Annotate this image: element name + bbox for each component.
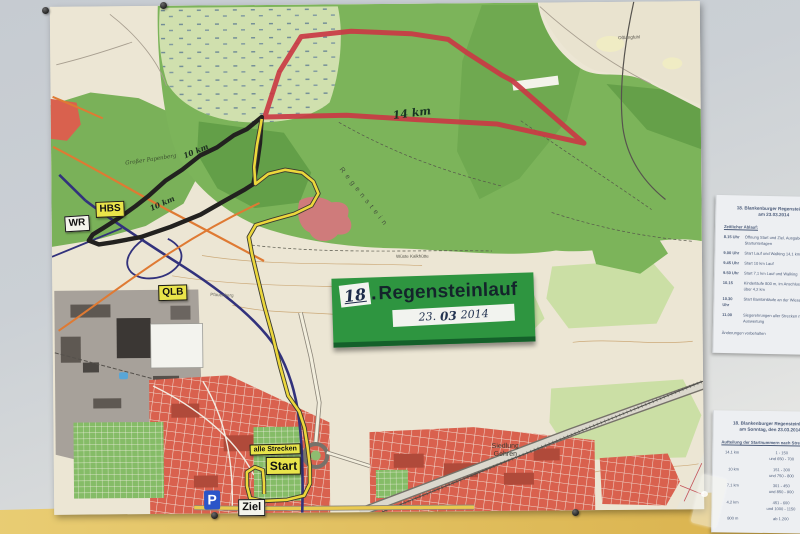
schedule-row: 10.30 UhrStart Bambiniläufe an der Wiese: [722, 296, 800, 310]
parking-sign: P: [204, 490, 220, 509]
place-kalkhuette: Wüste Kalkhütte: [396, 254, 429, 259]
event-sign-separator: .: [371, 282, 377, 305]
event-date-day: 23.: [418, 310, 436, 324]
note-startnumbers-heading: Aufteilung der Startnummern nach Strecke…: [721, 439, 800, 447]
pushpin: [42, 7, 49, 14]
note-schedule-subtitle: am 23.03.2014: [724, 211, 800, 219]
pushpin: [211, 512, 218, 519]
startnumber-row: 10 km151 - 300 und 750 - 800: [721, 466, 800, 479]
note-schedule-footer: Änderungen vorbehalten: [722, 330, 800, 338]
event-date-month: 03: [440, 308, 457, 323]
schedule-row: 9.00 UhrStart Lauf und Walking 14,1 km: [723, 250, 800, 258]
topographic-course-map: Großer Papenberg 10 km 10 km 14 km Regen…: [50, 1, 704, 515]
photo-of-course-map-on-wall: Großer Papenberg 10 km 10 km 14 km Regen…: [0, 0, 800, 534]
event-date-year: 2014: [460, 307, 489, 321]
note-schedule-heading: Zeitlicher Ablauf:: [724, 224, 800, 232]
place-pfauenberg: Pfauenberg: [210, 292, 233, 298]
startnumber-row: 14,1 km1 - 150 und 650 - 700: [721, 450, 800, 463]
note-startnumbers-subtitle: am Sonntag, den 23.03.2014: [722, 427, 800, 435]
event-sign-title: Regensteinlauf: [378, 278, 518, 304]
schedule-row: 8.15 UhrÖffnung Start und Ziel, Ausgabe …: [724, 234, 800, 248]
signpost-qlb: QLB: [158, 284, 188, 300]
map-artwork: [50, 1, 704, 515]
startnumber-row: 800 mab 1.200: [720, 515, 800, 522]
note-startnumbers: 18. Blankenburger Regensteinlauf am Sonn…: [711, 410, 800, 534]
event-date-patch: 23. 03 2014: [392, 304, 515, 327]
note-schedule: 18. Blankenburger Regensteinlauf am 23.0…: [712, 195, 800, 355]
place-osslangfuhl: Oßlangfuhl: [618, 34, 640, 40]
pushpin: [160, 2, 167, 9]
schedule-row: 10.15Kinderläufe 800 m, im Anschluss Läu…: [723, 280, 800, 294]
marker-ziel: Ziel: [238, 499, 265, 516]
schedule-row: 11.00Siegerehrungen aller Strecken nach …: [722, 312, 800, 326]
marker-start: Start: [266, 457, 302, 475]
startnumber-row: 4,2 km451 - 600 und 1000 - 1150: [720, 499, 800, 512]
schedule-row: 9.45 UhrStart 10 km Lauf: [723, 260, 800, 268]
signpost-hbs: HBS: [95, 201, 125, 218]
event-sign: 18 . Regensteinlauf 23. 03 2014: [331, 272, 535, 347]
pushpin: [572, 509, 579, 516]
signpost-wr: WR: [64, 215, 90, 232]
schedule-row: 9.50 UhrStart 7,1 km Lauf und Walking: [723, 270, 800, 278]
tape-glint: [701, 491, 708, 497]
marker-all-courses: alle Strecken: [250, 443, 301, 456]
place-siedlung-gehren: Siedlung Gehren: [492, 443, 519, 459]
startnumber-row: 7,1 km301 - 450 und 850 - 900: [721, 482, 800, 495]
event-number-patch: 18: [339, 282, 371, 307]
